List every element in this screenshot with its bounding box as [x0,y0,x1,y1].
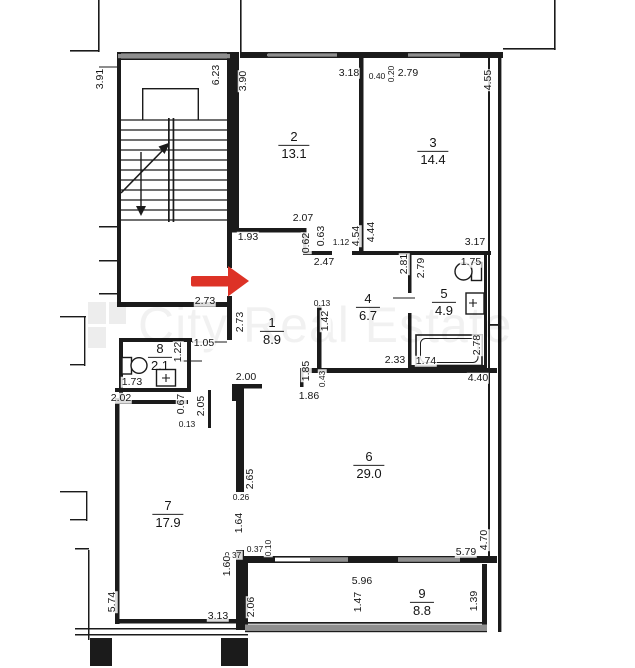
dimension-label: 4.55 [483,69,494,91]
dimension-label: 0.37 [246,545,265,554]
room-label-2: 213.1 [278,130,309,160]
watermark-logo-icon [88,302,126,348]
dimension-label: 0.13 [178,420,197,429]
dimension-label: 2.78 [472,334,483,356]
room-label-6: 629.0 [353,450,384,480]
dimension-label: 3.18 [338,68,360,79]
dimension-label: 0.67 [176,393,187,415]
dimension-label: 1.42 [320,310,331,332]
dimension-label: 1.93 [237,232,259,243]
dimension-label: 2.47 [313,257,335,268]
dimension-label: 0.20 [387,65,396,84]
room-label-9: 98.8 [410,587,434,617]
room-label-4: 46.7 [356,292,380,322]
dimension-label: 1.85 [301,360,312,382]
room-area: 29.0 [353,465,384,481]
dimension-label: 1.12 [332,238,351,247]
dimension-label: 1.47 [353,591,364,613]
room-number: 4 [362,292,373,306]
dimension-label: 4.54 [351,225,362,247]
room-label-7: 717.9 [152,499,183,529]
room-area: 4.9 [432,302,456,318]
dimension-label: 0.43 [318,370,327,389]
dimension-label: 2.07 [292,213,314,224]
room-area: 17.9 [152,514,183,530]
room-number: 5 [438,287,449,301]
dimension-label: 2.00 [235,372,257,383]
dimension-label: 1.64 [234,512,245,534]
room-label-5: 54.9 [432,287,456,317]
dimension-label: 2.65 [245,468,256,490]
dimension-label: 2.02 [110,393,132,404]
room-number: 3 [427,136,438,150]
dimension-label: 3.13 [207,611,229,622]
dimension-label: 1.73 [121,377,143,388]
dimension-label: 0.40 [368,72,387,81]
room-number: 8 [154,342,165,356]
dimension-label: 1.22 [173,341,184,363]
room-number: 7 [162,499,173,513]
dimension-label: 1.39 [469,590,480,612]
wc-toilet-icon [122,358,147,375]
entrance-arrow-icon [191,266,249,297]
dimension-label: 1.86 [298,391,320,402]
dimension-label: 1.75 [460,257,482,268]
dimension-label: 0.13 [313,299,332,308]
dimension-label: 2.05 [196,395,207,417]
dimension-label: 0.26 [232,493,251,502]
dimension-label: 2.79 [416,257,427,279]
room-number: 9 [416,587,427,601]
room-area: 6.7 [356,307,380,323]
dimension-label: 0.10 [264,539,273,558]
room-area: 2.1 [148,357,172,373]
dimension-label: 4.44 [366,221,377,243]
room-number: 1 [266,316,277,330]
dimension-label: 1.74 [415,356,437,367]
dimension-label: 3.17 [464,237,486,248]
floor-plan: City Real Estate 18.9213.1314.446.754.96… [0,0,635,668]
dimension-label: 2.33 [384,355,406,366]
dimension-label: 2.81 [399,253,410,275]
dimension-label: 4.40 [467,373,489,384]
dimension-label: 3.90 [238,70,249,92]
dimension-label: 2.06 [246,596,257,618]
dimension-label: 1.60 [222,555,233,577]
room-area: 8.8 [410,602,434,618]
dimension-label: 4.70 [479,529,490,551]
dimension-label: 2.79 [397,68,419,79]
dimension-label: 1.05 [193,338,215,349]
dimension-label: 2.73 [194,296,216,307]
room-area: 14.4 [417,151,448,167]
dimension-label: 5.74 [107,591,118,613]
dimension-label: 2.73 [235,311,246,333]
dimension-label: 3.91 [95,68,106,90]
room-label-3: 314.4 [417,136,448,166]
dimension-label: 5.79 [455,547,477,558]
dimension-label: 0.62 [301,232,312,254]
room-label-1: 18.9 [260,316,284,346]
room-number: 6 [363,450,374,464]
room-area: 8.9 [260,331,284,347]
dimension-label: 0.63 [316,225,327,247]
dimension-label: 6.23 [211,64,222,86]
room-number: 2 [288,130,299,144]
room-label-8: 82.1 [148,342,172,372]
dimension-label: 5.96 [351,576,373,587]
room-area: 13.1 [278,145,309,161]
